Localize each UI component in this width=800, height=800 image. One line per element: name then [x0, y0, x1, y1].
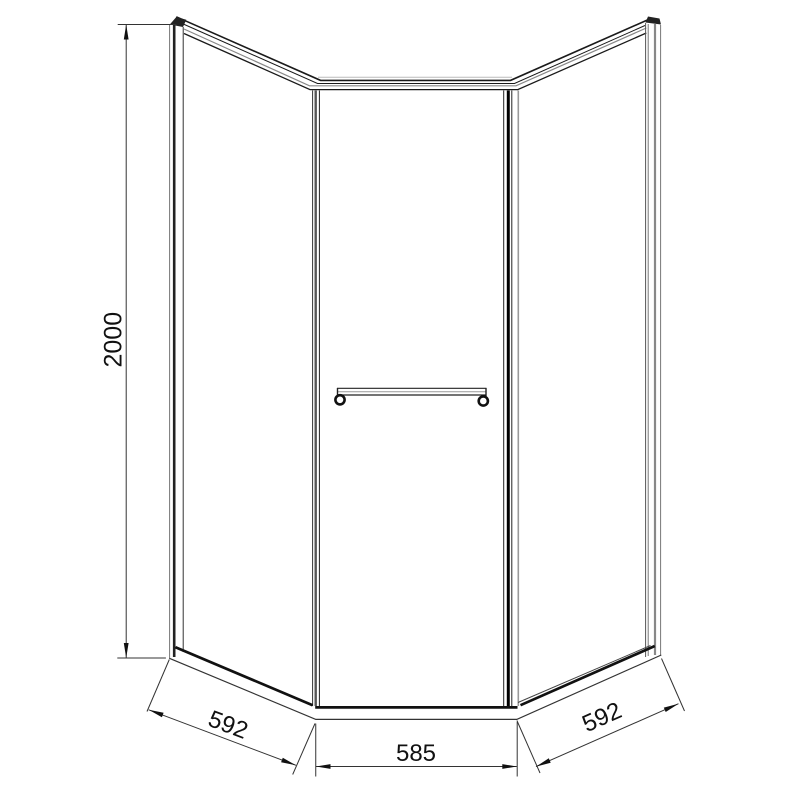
svg-text:585: 585 [396, 740, 436, 767]
svg-text:2000: 2000 [99, 312, 127, 368]
